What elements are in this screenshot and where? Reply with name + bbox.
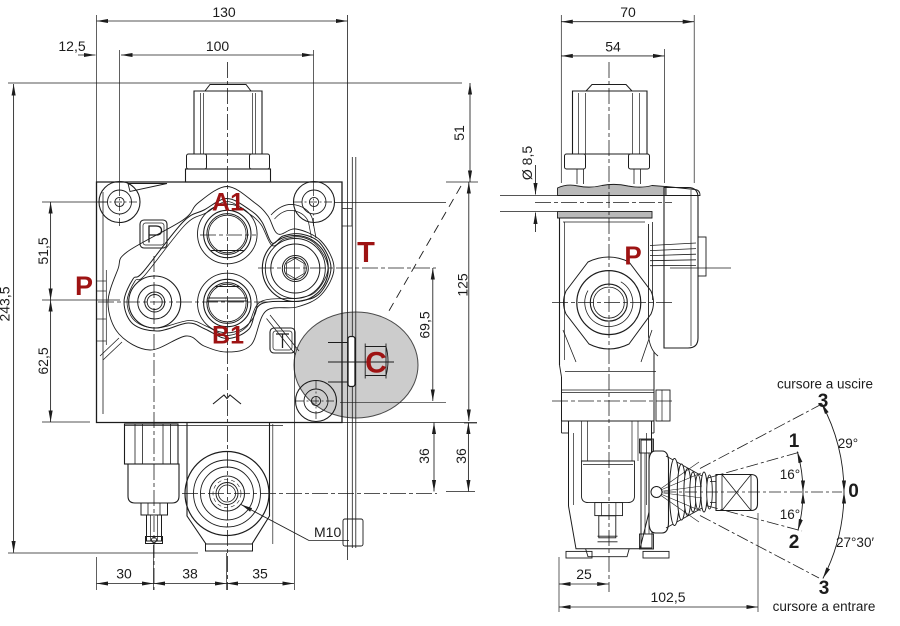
svg-text:30: 30 (116, 566, 132, 582)
svg-text:C: C (365, 347, 387, 380)
svg-text:100: 100 (206, 38, 230, 54)
svg-text:36: 36 (453, 448, 469, 464)
svg-text:35: 35 (252, 566, 268, 582)
svg-text:cursore a uscire: cursore a uscire (777, 377, 873, 392)
svg-text:29°: 29° (838, 436, 858, 451)
svg-text:1: 1 (789, 431, 800, 452)
svg-text:51,5: 51,5 (35, 237, 51, 264)
svg-text:54: 54 (605, 39, 621, 55)
svg-text:P: P (624, 241, 641, 271)
svg-text:2: 2 (789, 532, 800, 553)
svg-text:P: P (75, 271, 93, 301)
svg-text:70: 70 (620, 4, 636, 20)
svg-text:cursore a entrare: cursore a entrare (773, 599, 876, 614)
svg-text:27°30′: 27°30′ (836, 535, 874, 550)
svg-text:62,5: 62,5 (35, 347, 51, 374)
svg-text:Ø 8,5: Ø 8,5 (519, 146, 535, 180)
svg-text:16°: 16° (780, 467, 800, 482)
svg-text:16°: 16° (780, 507, 800, 522)
svg-text:12,5: 12,5 (58, 38, 85, 54)
svg-text:243,5: 243,5 (0, 286, 13, 321)
svg-text:25: 25 (576, 566, 592, 582)
svg-text:69,5: 69,5 (417, 311, 433, 338)
svg-text:B1: B1 (212, 322, 244, 350)
svg-text:38: 38 (182, 566, 198, 582)
svg-text:0: 0 (848, 481, 859, 502)
svg-text:T: T (357, 237, 375, 269)
svg-text:A1: A1 (212, 189, 244, 217)
svg-text:125: 125 (455, 273, 471, 297)
svg-text:102,5: 102,5 (650, 589, 685, 605)
svg-text:51: 51 (451, 125, 467, 141)
svg-text:M10: M10 (314, 524, 341, 540)
svg-text:3: 3 (818, 391, 829, 412)
svg-text:36: 36 (416, 448, 432, 464)
svg-text:130: 130 (212, 4, 236, 20)
svg-text:3: 3 (819, 578, 830, 599)
